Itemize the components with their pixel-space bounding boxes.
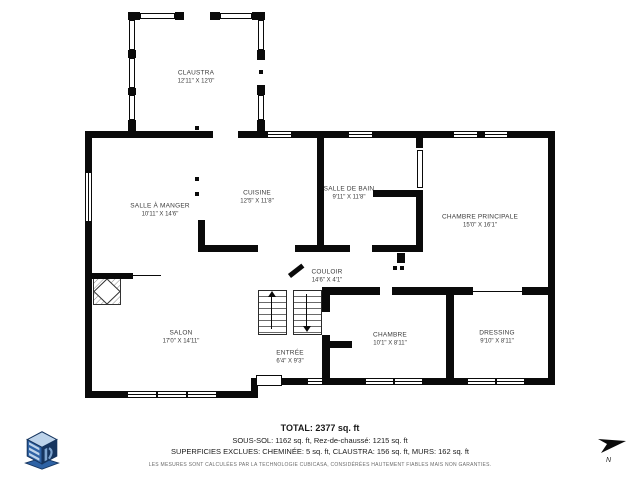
room-label-salle-de-bain: SALLE DE BAIN 9'11" X 11'8" xyxy=(324,185,375,202)
wall-segment xyxy=(324,245,350,252)
room-name: COULOIR xyxy=(311,268,342,276)
wall-segment xyxy=(416,197,423,245)
room-dims: 17'0" X 14'11" xyxy=(163,339,200,347)
window xyxy=(484,131,508,138)
floor-plan-page: { "plan": { "rooms": [ {"id":"claustra",… xyxy=(0,0,640,480)
wall-segment xyxy=(446,295,454,378)
total-area-text: TOTAL: 2377 sq. ft xyxy=(0,423,640,433)
room-name: ENTRÉE xyxy=(276,349,304,357)
north-arrow-icon xyxy=(596,432,628,454)
window xyxy=(496,378,525,385)
room-name: SALON xyxy=(163,329,200,337)
compass: N xyxy=(596,432,630,464)
wall-segment xyxy=(85,222,92,398)
room-dims: 10'1" X 8'11" xyxy=(373,341,407,349)
room-name: CUISINE xyxy=(240,189,273,197)
room-dims: 15'0" X 16'1" xyxy=(442,223,518,231)
room-name: CLAUSTRA xyxy=(178,69,215,77)
wall-segment xyxy=(257,120,265,138)
excluded-area-text: SUPERFICIES EXCLUES: CHEMINÉE: 5 sq. ft,… xyxy=(0,447,640,456)
wall-segment xyxy=(128,50,136,58)
wall-segment xyxy=(548,131,555,385)
wall-segment xyxy=(292,131,348,138)
wall-reference-dot xyxy=(400,266,404,270)
room-label-claustra: CLAUSTRA 12'11" X 12'0" xyxy=(178,69,215,86)
north-label: N xyxy=(606,457,630,464)
room-dims: 10'11" X 14'6" xyxy=(130,212,190,220)
wall-segment xyxy=(330,341,352,348)
wall-segment xyxy=(128,88,136,95)
wall-segment xyxy=(317,138,324,248)
claustra-screen-panel xyxy=(129,95,135,120)
fireplace-icon xyxy=(93,278,121,305)
window xyxy=(157,391,187,398)
wall-segment xyxy=(198,245,258,252)
room-dims: 9'10" X 8'11" xyxy=(479,339,515,347)
room-label-chambre-principale: CHAMBRE PRINCIPALE 15'0" X 16'1" xyxy=(442,213,518,230)
wall-segment xyxy=(92,273,133,279)
claustra-screen-panel xyxy=(129,58,135,88)
levels-area-text: SOUS-SOL: 1162 sq. ft, Rez-de-chaussé: 1… xyxy=(0,436,640,445)
wall-segment xyxy=(322,335,330,378)
stair-arrow-stem xyxy=(271,297,272,329)
wall-segment xyxy=(295,245,324,252)
window xyxy=(127,391,157,398)
window xyxy=(85,172,92,222)
cubicasa-3d-logo xyxy=(22,428,62,472)
door-leaf xyxy=(288,264,304,278)
wall-segment xyxy=(323,378,365,385)
wall-segment xyxy=(423,378,467,385)
room-name: SALLE À MANGER xyxy=(130,202,190,210)
wall-segment xyxy=(522,287,548,295)
room-label-dressing: DRESSING 9'10" X 8'11" xyxy=(479,329,515,346)
wall-segment xyxy=(85,391,127,398)
room-dims: 9'11" X 11'8" xyxy=(324,195,375,203)
room-dims: 12'5" X 11'8" xyxy=(240,199,273,207)
front-door xyxy=(256,375,282,386)
claustra-screen-panel xyxy=(140,13,175,19)
room-label-couloir: COULOIR 14'6" X 4'1" xyxy=(311,268,342,285)
room-name: CHAMBRE PRINCIPALE xyxy=(442,213,518,221)
window xyxy=(267,131,292,138)
wall-segment xyxy=(257,85,265,95)
room-dims: 12'11" X 12'0" xyxy=(178,79,215,87)
wall-segment xyxy=(392,287,473,295)
wall-segment xyxy=(372,245,423,252)
room-dims: 14'6" X 4'1" xyxy=(311,278,342,286)
wall-segment xyxy=(85,131,213,138)
room-label-salon: SALON 17'0" X 14'11" xyxy=(163,329,200,346)
wall-segment xyxy=(373,190,423,197)
wall-segment xyxy=(257,50,265,60)
stair-down-arrow-icon xyxy=(303,326,311,332)
bathroom-door-leaf xyxy=(417,150,423,188)
window xyxy=(307,378,323,385)
wall-segment xyxy=(280,378,307,385)
stair-up-arrow-icon xyxy=(268,291,276,297)
wall-segment xyxy=(322,287,330,312)
room-label-chambre: CHAMBRE 10'1" X 8'11" xyxy=(373,331,407,348)
claustra-screen-panel xyxy=(220,13,252,19)
wall-segment xyxy=(373,131,453,138)
window xyxy=(467,378,496,385)
wall-segment xyxy=(252,12,265,20)
stair-arrow-stem xyxy=(306,294,307,326)
wall-segment xyxy=(85,131,92,172)
claustra-screen-panel xyxy=(129,20,135,50)
divider-line xyxy=(133,275,161,276)
floor-plan-canvas: CLAUSTRA 12'11" X 12'0" SALLE À MANGER 1… xyxy=(0,0,640,423)
window xyxy=(453,131,478,138)
opening-line xyxy=(473,291,522,292)
window xyxy=(394,378,423,385)
window xyxy=(348,131,373,138)
wall-reference-dot xyxy=(195,192,199,196)
wall-segment xyxy=(175,12,184,20)
wall-reference-dot xyxy=(195,177,199,181)
window xyxy=(365,378,394,385)
wall-segment xyxy=(210,12,220,20)
room-label-entree: ENTRÉE 6'4" X 9'3" xyxy=(276,349,304,366)
room-label-cuisine: CUISINE 12'5" X 11'8" xyxy=(240,189,273,206)
room-dims: 6'4" X 9'3" xyxy=(276,359,304,367)
wall-segment xyxy=(128,12,140,20)
wall-reference-dot xyxy=(195,126,199,130)
wall-segment xyxy=(322,287,380,295)
wall-reference-dot xyxy=(259,70,263,74)
window xyxy=(187,391,217,398)
wall-segment xyxy=(416,138,423,148)
summary-block: TOTAL: 2377 sq. ft SOUS-SOL: 1162 sq. ft… xyxy=(0,423,640,468)
wall-segment xyxy=(128,120,136,138)
claustra-screen-panel xyxy=(258,95,264,120)
claustra-screen-panel xyxy=(258,20,264,50)
wall-reference-dot xyxy=(393,266,397,270)
disclaimer-text: LES MESURES SONT CALCULÉES PAR LA TECHNO… xyxy=(0,462,640,468)
wall-segment xyxy=(397,253,405,263)
room-name: SALLE DE BAIN xyxy=(324,185,375,193)
room-name: CHAMBRE xyxy=(373,331,407,339)
room-label-salle-a-manger: SALLE À MANGER 10'11" X 14'6" xyxy=(130,202,190,219)
room-name: DRESSING xyxy=(479,329,515,337)
